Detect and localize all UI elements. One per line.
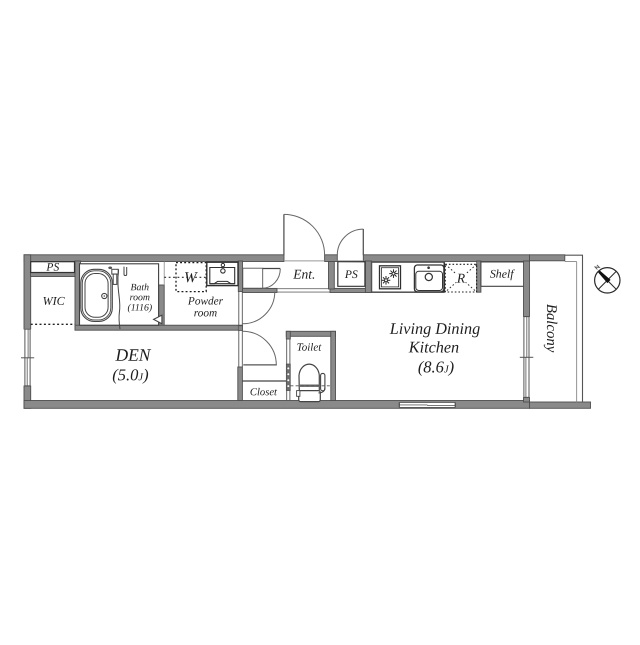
svg-text:(1116): (1116) <box>127 302 152 313</box>
svg-text:room: room <box>194 307 217 319</box>
svg-text:(5.0J): (5.0J) <box>112 365 148 384</box>
svg-text:R: R <box>456 271 466 286</box>
svg-text:Kitchen: Kitchen <box>408 338 459 356</box>
svg-text:(8.6J): (8.6J) <box>418 357 454 376</box>
svg-text:W: W <box>184 270 198 286</box>
svg-text:WIC: WIC <box>43 294 66 308</box>
svg-text:PS: PS <box>45 262 59 274</box>
svg-text:Balcony: Balcony <box>543 304 559 353</box>
svg-text:Powder: Powder <box>187 296 224 308</box>
svg-text:DEN: DEN <box>114 345 151 365</box>
svg-text:Ent.: Ent. <box>292 267 315 282</box>
svg-text:Shelf: Shelf <box>490 267 515 281</box>
svg-text:Toilet: Toilet <box>297 342 323 354</box>
svg-text:Closet: Closet <box>250 387 278 398</box>
svg-text:Living Dining: Living Dining <box>389 320 480 338</box>
svg-text:PS: PS <box>344 269 358 281</box>
